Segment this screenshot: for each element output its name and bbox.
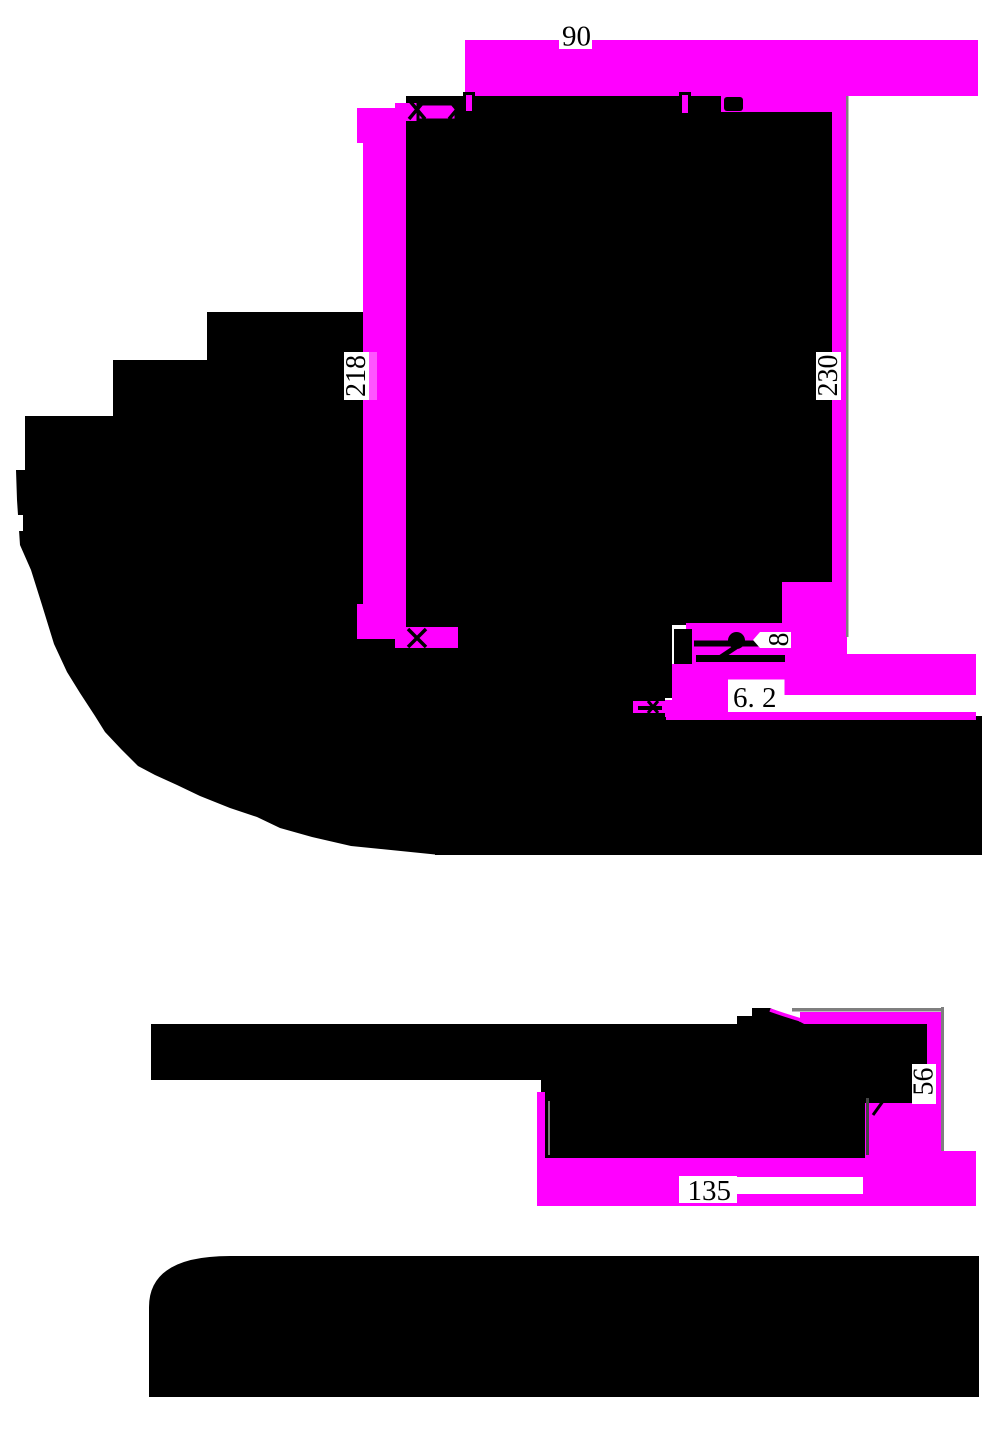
svg-text:56: 56 — [909, 1068, 940, 1096]
svg-text:6. 2: 6. 2 — [733, 682, 777, 714]
svg-text:135: 135 — [688, 1175, 732, 1207]
svg-text:230: 230 — [813, 355, 844, 397]
svg-text:218: 218 — [341, 355, 372, 397]
svg-text:8: 8 — [764, 633, 795, 647]
svg-text:90: 90 — [562, 21, 591, 53]
